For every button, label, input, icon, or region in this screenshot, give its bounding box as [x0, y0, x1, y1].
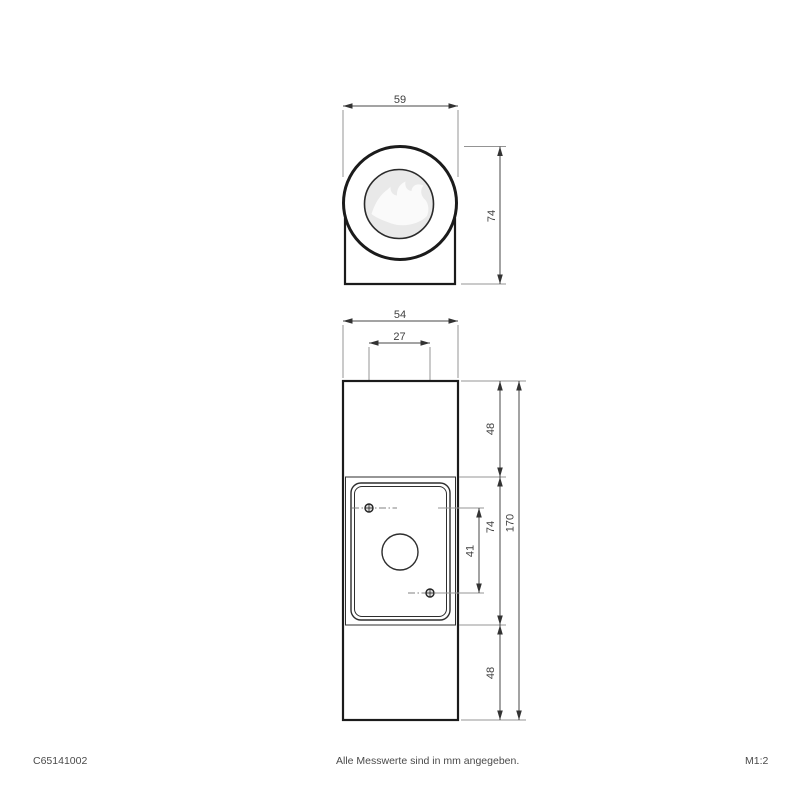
arrowhead-left — [369, 340, 379, 346]
dimension-value-top-section: 48 — [485, 423, 497, 435]
arrowhead-top — [516, 381, 522, 391]
top-view: 59 74 — [343, 94, 506, 284]
arrowhead-bottom — [476, 584, 482, 594]
front-view: 54 27 — [343, 309, 526, 720]
footer-article-number: C65141002 — [33, 755, 87, 767]
arrowhead-right — [449, 318, 459, 324]
arrowhead-top — [476, 508, 482, 518]
dimension-value: 170 — [505, 514, 517, 532]
dimension-value-bottom-section: 48 — [485, 667, 497, 679]
drawing-canvas: 59 74 — [0, 0, 800, 800]
footer-scale: M1:2 — [745, 755, 769, 767]
arrowhead-chain — [497, 477, 503, 487]
dimension-value-plate-height: 74 — [485, 521, 497, 533]
arrowhead-top — [497, 147, 503, 157]
arrowhead-top — [497, 381, 503, 391]
dim-height-chain: 48 74 48 — [485, 381, 503, 720]
footer: C65141002 Alle Messwerte sind in mm ange… — [33, 755, 769, 767]
dim-total-height: 170 — [505, 381, 522, 720]
arrowhead-chain — [497, 625, 503, 635]
arrowhead-bottom — [516, 711, 522, 721]
arrowhead-bottom — [497, 711, 503, 721]
footer-note: Alle Messwerte sind in mm angegeben. — [336, 755, 519, 767]
dimension-value: 27 — [393, 331, 405, 343]
dimension-value: 74 — [486, 210, 498, 222]
arrowhead-chain — [497, 616, 503, 626]
dim-head-depth: 74 — [461, 147, 506, 285]
arrowhead-left — [343, 318, 353, 324]
dimension-value: 54 — [394, 309, 406, 321]
arrowhead-chain — [497, 468, 503, 478]
arrowhead-left — [343, 103, 353, 109]
arrowhead-right — [421, 340, 431, 346]
dimension-value: 41 — [465, 545, 477, 557]
technical-drawing-sheet: 59 74 — [0, 0, 800, 800]
arrowhead-bottom — [497, 275, 503, 285]
dimension-value: 59 — [394, 94, 406, 106]
cable-entry-hole — [382, 534, 418, 570]
arrowhead-right — [449, 103, 459, 109]
